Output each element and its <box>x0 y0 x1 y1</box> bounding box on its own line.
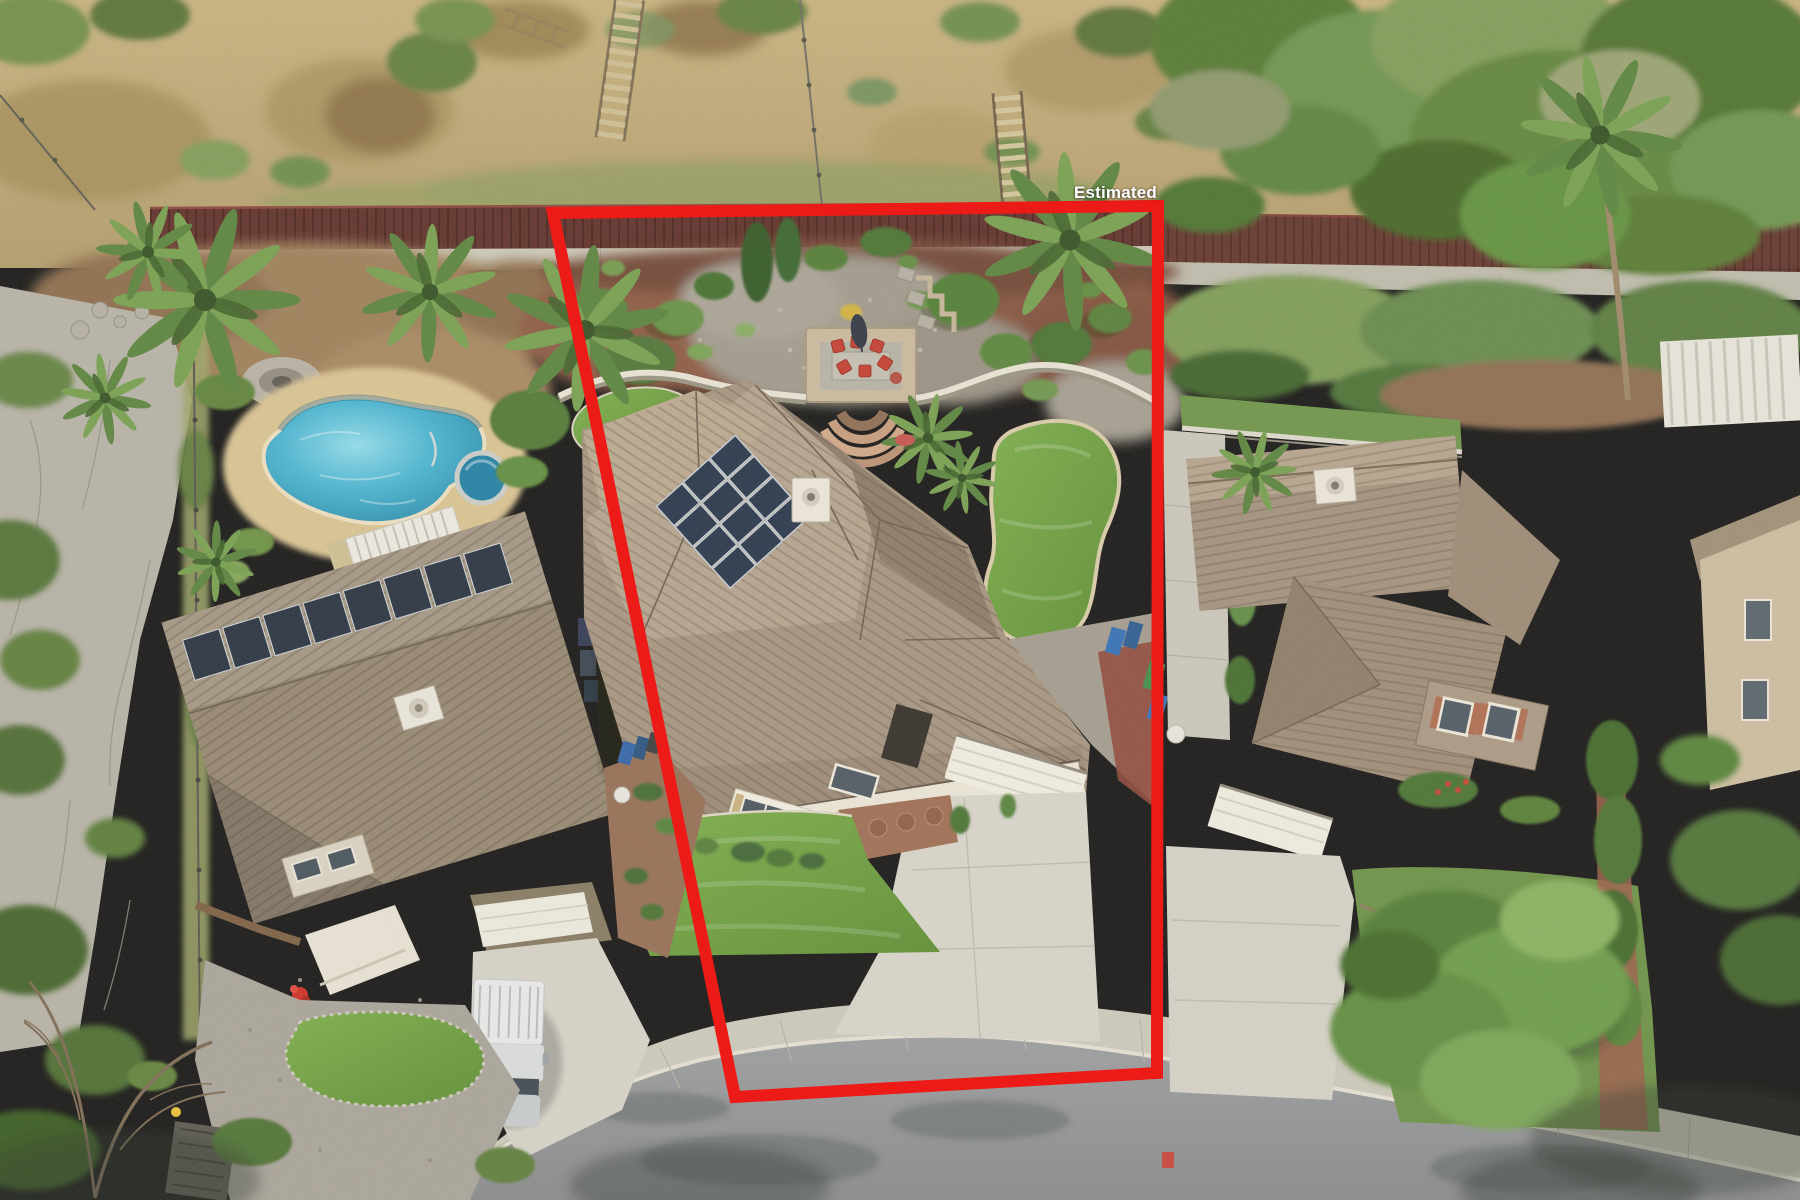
aerial-photo <box>0 0 1800 1200</box>
screenshot-root: Estimated <box>0 0 1800 1200</box>
estimated-label: Estimated <box>1074 183 1157 203</box>
